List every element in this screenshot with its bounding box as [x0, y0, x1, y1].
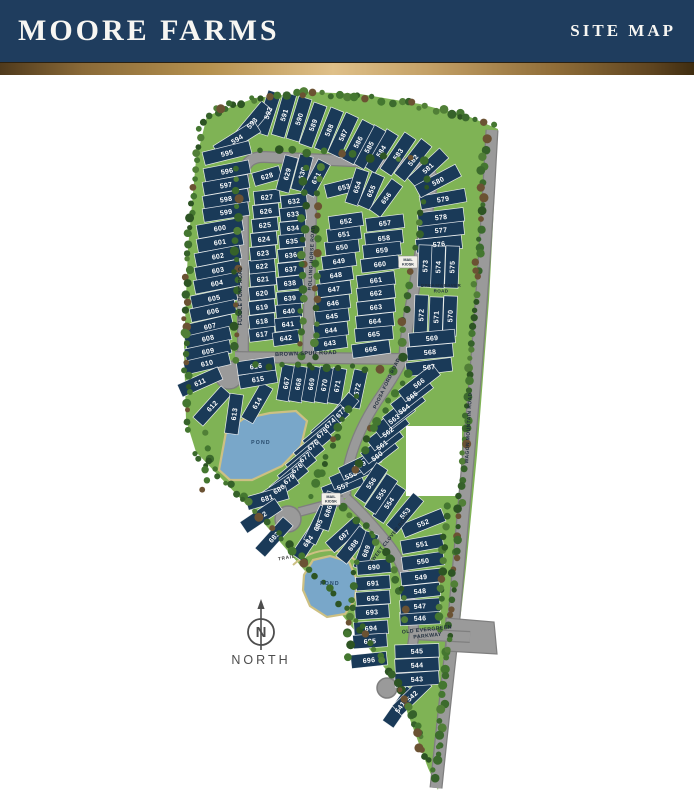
tree	[408, 155, 414, 161]
tree	[301, 225, 310, 234]
lot-label-625: 625	[258, 222, 271, 230]
tree	[377, 98, 385, 106]
tree	[350, 605, 356, 611]
tree	[400, 327, 406, 333]
tree	[299, 272, 306, 279]
tree	[309, 89, 317, 97]
tree	[338, 150, 346, 158]
tree	[421, 199, 426, 204]
tree	[194, 157, 200, 163]
lot-label-624: 624	[257, 236, 270, 244]
tree	[205, 458, 212, 465]
page: MOORE FARMS SITE MAP 5905915925935945955…	[0, 0, 694, 805]
tree	[352, 517, 360, 525]
tree	[472, 267, 478, 273]
tree	[471, 314, 478, 321]
tree	[235, 194, 244, 203]
tree	[454, 536, 462, 544]
tree	[230, 342, 239, 351]
tree	[234, 257, 239, 262]
tree	[360, 623, 366, 629]
tree	[254, 513, 263, 522]
tree	[447, 637, 453, 643]
lot-label-576: 576	[432, 241, 445, 249]
tree	[186, 384, 191, 389]
tree	[447, 110, 456, 119]
tree	[184, 241, 192, 249]
tree	[443, 655, 449, 661]
tree	[416, 106, 421, 111]
lot-label-568: 568	[424, 349, 437, 357]
tree	[477, 184, 485, 192]
tree	[472, 308, 477, 313]
lot-label-663: 663	[369, 304, 382, 312]
lot-label-570: 570	[447, 310, 454, 323]
tree	[245, 498, 253, 506]
lot-label-620: 620	[255, 290, 268, 298]
tree	[182, 290, 190, 298]
tree	[315, 213, 321, 219]
tree	[370, 424, 378, 432]
tree	[223, 481, 228, 486]
tree	[299, 261, 305, 267]
tree	[187, 389, 193, 395]
tree	[269, 525, 275, 531]
tree	[436, 745, 441, 750]
tree	[391, 576, 399, 584]
tree	[202, 430, 208, 436]
tree	[450, 580, 458, 588]
tree	[407, 268, 414, 275]
tree	[231, 269, 237, 275]
page-title: MOORE FARMS	[18, 14, 280, 48]
lot-label-696: 696	[362, 657, 375, 665]
tree	[276, 530, 282, 536]
tree	[185, 407, 190, 412]
tree	[273, 92, 281, 100]
tree	[185, 427, 191, 433]
lot-label-626: 626	[259, 208, 272, 216]
lot-label-546: 546	[414, 615, 427, 623]
tree	[413, 728, 422, 737]
tree	[400, 381, 406, 387]
tree	[313, 332, 319, 338]
tree	[479, 193, 488, 202]
tree	[456, 513, 462, 519]
pond-label-upper: POND	[251, 440, 271, 446]
tree	[401, 695, 408, 702]
tree	[422, 103, 428, 109]
tree	[361, 446, 369, 454]
tree	[385, 398, 391, 404]
tree	[351, 570, 356, 575]
tree	[330, 436, 336, 442]
north-compass: N	[248, 599, 274, 650]
tree	[350, 582, 358, 590]
tree	[323, 454, 329, 460]
lot-label-627: 627	[260, 194, 273, 202]
tree	[316, 176, 322, 182]
tree	[200, 119, 207, 126]
tree	[182, 330, 191, 339]
tree	[216, 104, 225, 113]
tree	[275, 145, 284, 154]
tree	[398, 317, 407, 326]
tree	[300, 295, 308, 303]
tree	[354, 394, 359, 399]
tree	[227, 481, 234, 488]
tree	[442, 672, 449, 679]
tree	[437, 718, 443, 724]
tree	[438, 691, 445, 698]
tree	[186, 231, 192, 237]
tree	[424, 185, 429, 190]
tree	[371, 534, 376, 539]
tree	[226, 100, 232, 106]
compass-n: N	[256, 624, 267, 641]
tree	[424, 176, 431, 183]
tree	[468, 347, 474, 353]
tree	[199, 487, 205, 493]
lot-label-547: 547	[414, 603, 427, 611]
tree	[471, 281, 477, 287]
tree	[404, 369, 413, 378]
tree	[184, 299, 191, 306]
tree	[182, 399, 191, 408]
tree	[181, 316, 186, 321]
tree	[319, 90, 324, 95]
tree	[314, 190, 320, 196]
tree	[279, 362, 284, 367]
tree	[473, 299, 479, 305]
tree	[314, 296, 322, 304]
tree	[433, 756, 442, 765]
svg-text:KIOSK: KIOSK	[325, 500, 337, 504]
tree	[412, 245, 418, 251]
tree	[447, 612, 453, 618]
tree	[362, 630, 369, 637]
tree	[257, 148, 263, 154]
tree	[192, 149, 200, 157]
lot-label-638: 638	[283, 280, 296, 288]
tree	[328, 93, 334, 99]
lot-label-577: 577	[434, 227, 447, 235]
tree	[232, 357, 239, 364]
tree	[478, 226, 486, 234]
tree	[311, 479, 320, 488]
tree	[366, 154, 375, 163]
tree	[372, 539, 379, 546]
tree	[476, 249, 484, 257]
svg-text:MAIL: MAIL	[403, 258, 413, 262]
tree	[440, 105, 449, 114]
tree	[362, 367, 369, 374]
tree	[401, 595, 406, 600]
culdesac-south	[377, 678, 397, 698]
tree	[442, 523, 449, 530]
tree	[480, 119, 487, 126]
north-arrow	[257, 599, 264, 609]
tree	[344, 653, 352, 661]
tree	[232, 187, 239, 194]
tree	[297, 308, 303, 314]
tree	[464, 364, 473, 373]
tree	[240, 497, 245, 502]
tree	[234, 213, 243, 222]
tree	[313, 305, 320, 312]
tree	[478, 206, 487, 215]
tree	[442, 544, 449, 551]
svg-text:MAIL: MAIL	[326, 495, 336, 499]
tree	[380, 152, 387, 159]
tree	[192, 451, 197, 456]
tree	[404, 292, 411, 299]
lot-label-573: 573	[422, 260, 429, 273]
tree	[266, 93, 273, 100]
tree	[184, 360, 190, 366]
excluded-parcel	[406, 426, 462, 496]
lot-label-641: 641	[281, 321, 294, 329]
tree	[361, 95, 368, 102]
tree	[389, 556, 396, 563]
tree	[301, 189, 308, 196]
tree	[354, 618, 359, 623]
tree	[299, 285, 308, 294]
tree	[468, 340, 475, 347]
tree	[452, 587, 457, 592]
lot-label-571: 571	[433, 311, 440, 324]
tree	[317, 163, 325, 171]
tree	[252, 509, 257, 514]
tree	[445, 647, 451, 653]
lot-label-691: 691	[367, 580, 380, 588]
tree	[448, 569, 456, 577]
tree	[205, 445, 211, 451]
tree	[436, 604, 443, 611]
tree	[440, 534, 446, 540]
lot-label-636: 636	[284, 252, 297, 260]
tree	[196, 144, 202, 150]
tree	[299, 177, 308, 186]
tree	[191, 193, 198, 200]
tree	[468, 330, 475, 337]
road-label-fuddle-pond-road: FUDDLE POND ROAD	[238, 267, 244, 326]
lot-label-658: 658	[377, 235, 390, 243]
lot-label-621: 621	[257, 276, 270, 284]
tree	[476, 166, 485, 175]
tree	[409, 710, 417, 718]
tree	[184, 340, 190, 346]
tree	[206, 113, 213, 120]
tree	[453, 548, 460, 555]
tree	[438, 575, 446, 583]
lot-label-635: 635	[286, 238, 299, 246]
tree	[184, 279, 192, 287]
tree	[417, 210, 423, 216]
tree	[363, 522, 370, 529]
tree	[391, 389, 399, 397]
tree	[333, 423, 342, 432]
tree	[233, 491, 240, 498]
tree	[478, 153, 486, 161]
tree	[183, 351, 189, 357]
tree	[283, 91, 291, 99]
tree	[444, 513, 451, 520]
tree	[184, 250, 190, 256]
tree	[181, 367, 187, 373]
tree	[454, 555, 460, 561]
tree	[440, 557, 447, 564]
tree	[478, 216, 484, 222]
tree	[420, 156, 429, 165]
tree	[318, 469, 326, 477]
tree	[449, 597, 456, 604]
tree	[369, 94, 374, 99]
lot-label-659: 659	[375, 247, 388, 255]
tree	[195, 456, 201, 462]
tree	[204, 477, 210, 483]
tree	[378, 657, 385, 664]
tree	[433, 108, 440, 115]
tree	[233, 227, 241, 235]
tree	[453, 504, 462, 513]
tree	[455, 493, 461, 499]
tree	[344, 606, 349, 611]
tree	[419, 747, 425, 753]
lot-label-640: 640	[283, 308, 296, 316]
tree	[416, 230, 424, 238]
tree	[371, 647, 376, 652]
tree	[302, 202, 310, 210]
tree	[491, 122, 497, 128]
lot-label-639: 639	[284, 295, 297, 303]
tree	[237, 100, 245, 108]
tree	[279, 536, 284, 541]
site-map-svg: 5905915925935945955965975985996006016026…	[0, 75, 694, 805]
tree	[330, 591, 336, 597]
tree	[474, 291, 481, 298]
tree	[416, 219, 423, 226]
tree	[435, 731, 444, 740]
tree	[186, 266, 194, 274]
tree	[184, 419, 191, 426]
tree	[185, 213, 194, 222]
lot-label-574: 574	[435, 261, 442, 274]
tree	[472, 258, 479, 265]
tree	[339, 417, 344, 422]
tree	[201, 466, 208, 473]
tree	[299, 559, 308, 568]
tree	[297, 214, 305, 222]
tree	[349, 150, 357, 158]
tree	[302, 149, 311, 158]
tree	[344, 405, 352, 413]
tree	[308, 494, 313, 499]
lot-label-637: 637	[284, 266, 297, 274]
tree	[352, 466, 360, 474]
tree	[465, 376, 474, 385]
tree	[234, 332, 239, 337]
lot-label-545: 545	[411, 648, 424, 655]
tree	[264, 519, 271, 526]
tree	[182, 307, 189, 314]
lot-label-575: 575	[449, 261, 456, 274]
tree	[314, 202, 322, 210]
tree	[426, 757, 432, 763]
tree	[234, 204, 239, 209]
tree	[388, 671, 396, 679]
tree	[300, 318, 307, 325]
lot-label-634: 634	[287, 225, 300, 233]
lot-label-622: 622	[255, 263, 268, 271]
tree	[408, 99, 415, 106]
tree	[405, 703, 413, 711]
tree	[436, 705, 445, 714]
tree	[297, 251, 306, 260]
tree	[462, 114, 470, 122]
tree	[322, 461, 328, 467]
tree	[438, 681, 447, 690]
tree	[415, 723, 422, 730]
tree	[363, 435, 370, 442]
tree	[346, 512, 352, 518]
tree	[430, 767, 435, 772]
tree	[300, 92, 306, 98]
tree	[349, 597, 355, 603]
tree	[467, 356, 472, 361]
tree	[314, 321, 319, 326]
tree	[472, 117, 477, 122]
tree	[344, 630, 351, 637]
tree	[346, 640, 355, 649]
tree	[397, 687, 402, 692]
lot-label-572: 572	[418, 309, 425, 322]
site-map: 5905915925935945955965975985996006016026…	[0, 75, 694, 805]
tree	[389, 100, 397, 108]
tree	[303, 165, 309, 171]
tree	[335, 365, 341, 371]
tree	[298, 328, 305, 335]
tree	[448, 606, 454, 612]
lot-label-623: 623	[256, 250, 269, 258]
lot-label-569: 569	[426, 335, 439, 343]
tree	[354, 559, 360, 565]
trail-label: TRAIL	[278, 554, 296, 562]
tree	[431, 774, 440, 783]
tree	[185, 372, 193, 380]
tree	[398, 338, 407, 347]
tree	[439, 567, 448, 576]
tree	[321, 148, 328, 155]
tree	[367, 640, 373, 646]
tree	[335, 601, 342, 608]
tree	[249, 95, 254, 100]
tree	[232, 237, 239, 244]
svg-text:KIOSK: KIOSK	[402, 263, 414, 267]
tree	[197, 134, 204, 141]
tree	[350, 363, 355, 368]
lot-label-690: 690	[368, 564, 381, 572]
tree	[461, 465, 468, 472]
lot-label-549: 549	[414, 574, 427, 582]
tree	[188, 201, 194, 207]
tree	[233, 166, 239, 172]
tree	[311, 573, 318, 580]
lot-label-665: 665	[368, 331, 381, 339]
mail-kiosk-south: MAILKIOSK	[322, 493, 341, 505]
tree	[405, 282, 413, 290]
lot-label-692: 692	[367, 595, 380, 603]
